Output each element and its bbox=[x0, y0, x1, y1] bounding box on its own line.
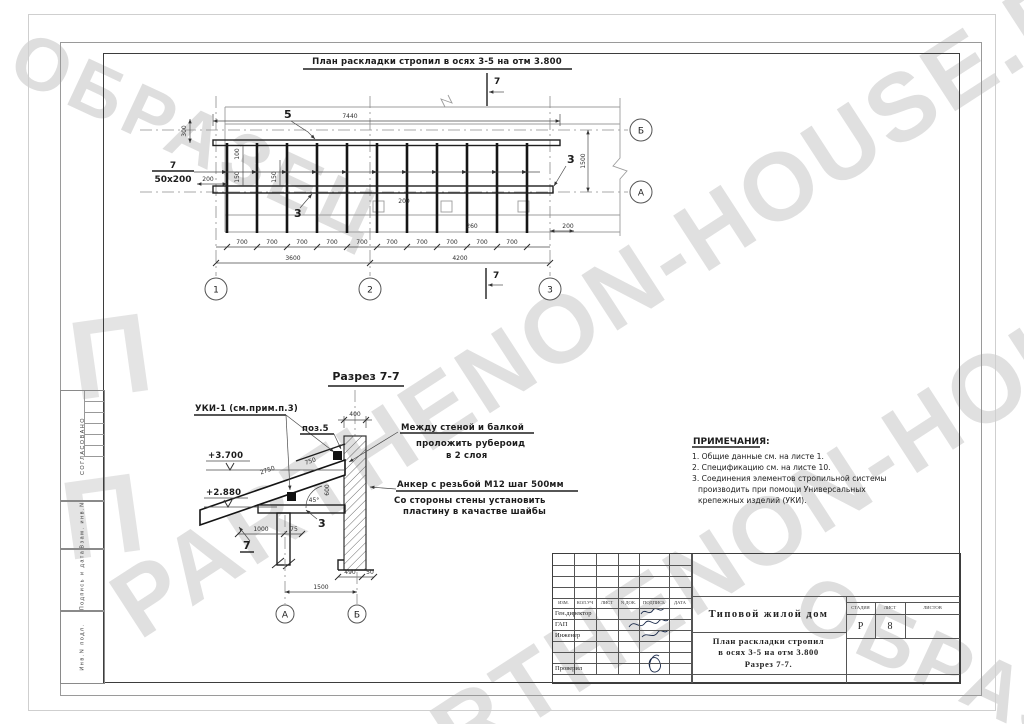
dim-700: 700 bbox=[446, 239, 458, 246]
dim-4200: 4200 bbox=[452, 255, 467, 262]
section-annotations: Между стеной и балкой проложить рубероид… bbox=[349, 422, 578, 517]
tb-sheet-title-1: План раскладки стропил bbox=[713, 636, 824, 647]
dim-260: 260 bbox=[466, 223, 478, 230]
title-block: ИЗМ. КОЛ.УЧ ЛИСТ N ДОК. ПОДПИСЬ ДАТА Ген… bbox=[552, 553, 961, 684]
tb-line bbox=[553, 641, 691, 642]
dim-700: 700 bbox=[236, 239, 248, 246]
section-beam-label: 3 bbox=[318, 517, 326, 530]
dim-1000: 1000 bbox=[253, 526, 268, 533]
tb-line bbox=[639, 554, 640, 674]
tb-line bbox=[553, 565, 691, 566]
axis-1: 1 bbox=[213, 286, 219, 296]
tb-rev-ndok: N ДОК. bbox=[618, 600, 639, 605]
dim-400: 400 bbox=[349, 411, 361, 418]
beam-top-label: 5 bbox=[284, 108, 292, 121]
tb-rev-podpis: ПОДПИСЬ bbox=[639, 600, 669, 605]
tb-list-header: ЛИСТ bbox=[875, 605, 905, 610]
dim-3600: 3600 bbox=[285, 255, 300, 262]
dim-2750: 2750 bbox=[259, 465, 276, 477]
note-anchor-line3: пластину в качастве шайбы bbox=[403, 506, 546, 517]
elevation-bottom: +2.880 bbox=[206, 488, 241, 498]
section-beam bbox=[258, 505, 345, 513]
dim-100: 100 bbox=[234, 148, 241, 160]
section-wall bbox=[344, 436, 366, 570]
dim-600: 600 bbox=[324, 484, 331, 496]
dim-200-mid: 200 bbox=[398, 198, 410, 205]
uki-connector-2 bbox=[333, 451, 342, 460]
tb-role-gap: ГАП bbox=[555, 621, 567, 628]
note-anchor-line1: Анкер с резьбой М12 шаг 500мм bbox=[397, 479, 564, 490]
axis-A: А bbox=[638, 189, 645, 199]
tb-sheets-total bbox=[905, 614, 960, 638]
dim-490: 490 bbox=[344, 569, 356, 576]
beam-mid-label: 3 bbox=[294, 207, 302, 220]
tb-project-title: Типовой жилой дом bbox=[691, 596, 846, 632]
section-view: Разрез 7-7 400 bbox=[194, 370, 578, 623]
tb-role-director: Ген.директор bbox=[555, 610, 592, 617]
dim-300: 300 bbox=[181, 125, 188, 137]
section-axis-B: Б bbox=[354, 611, 360, 621]
note-wall-line3: в 2 слоя bbox=[446, 451, 487, 461]
beam-right-label: 3 bbox=[567, 153, 575, 166]
note-item-3: 3. Соединения элементов стропильной сист… bbox=[692, 474, 886, 483]
plan-beam-top bbox=[213, 140, 560, 146]
note-wall-line2: проложить рубероид bbox=[416, 438, 525, 449]
tb-rev-koluch: КОЛ.УЧ bbox=[574, 600, 596, 605]
uki-label: УКИ-1 (см.прим.п.3) bbox=[195, 404, 298, 414]
tb-line bbox=[596, 554, 597, 674]
uki-connector-1 bbox=[287, 492, 296, 501]
tb-sheet-title-2: в осях 3-5 на отм 3.800 bbox=[718, 647, 819, 658]
dim-700: 700 bbox=[506, 239, 518, 246]
dim-700: 700 bbox=[326, 239, 338, 246]
section-mark-label: 7 bbox=[493, 271, 499, 281]
dim-700: 700 bbox=[356, 239, 368, 246]
tb-line bbox=[553, 608, 691, 609]
tb-sheet-title: План раскладки стропил в осях 3-5 на отм… bbox=[691, 632, 846, 674]
note-item-3c: крепежных изделий (УКИ). bbox=[698, 496, 807, 505]
axis-B: Б bbox=[638, 127, 644, 137]
tb-line bbox=[553, 598, 691, 599]
elevation-top: +3.700 bbox=[208, 451, 243, 461]
tb-rev-list: ЛИСТ bbox=[596, 600, 618, 605]
tb-role-checked: Проверил bbox=[555, 665, 582, 672]
tb-line bbox=[553, 663, 691, 664]
section-axis-A: А bbox=[282, 611, 289, 621]
axis-2: 2 bbox=[367, 286, 373, 296]
plan-position-labels: 5 3 3 bbox=[284, 108, 575, 220]
section-post bbox=[272, 513, 295, 569]
tb-sheet-number: 8 bbox=[875, 614, 905, 638]
plan-title: План раскладки стропил в осях 3-5 на отм… bbox=[312, 57, 562, 67]
note-item-1: 1. Общие данные см. на листе 1. bbox=[692, 452, 824, 461]
dim-1500: 1500 bbox=[580, 153, 587, 168]
tb-line bbox=[553, 576, 691, 577]
tb-line bbox=[669, 554, 670, 674]
note-item-2: 2. Спецификацию см. на листе 10. bbox=[692, 463, 831, 472]
section-mark-label: 7 bbox=[494, 77, 500, 87]
notes-block: ПРИМЕЧАНИЯ: 1. Общие данные см. на листе… bbox=[692, 437, 886, 505]
plan-rafters bbox=[227, 143, 527, 233]
tb-line bbox=[553, 619, 691, 620]
note-item-3b: производить при помощи Универсальных bbox=[698, 485, 866, 494]
tb-listov-header: ЛИСТОВ bbox=[905, 605, 960, 610]
tb-rev-izm: ИЗМ. bbox=[553, 600, 574, 605]
tb-stage-value: Р bbox=[846, 614, 875, 638]
tb-line bbox=[618, 554, 619, 674]
dim-700: 700 bbox=[386, 239, 398, 246]
note-wall-line1: Между стеной и балкой bbox=[401, 422, 524, 433]
dim-150-b: 150 bbox=[271, 171, 278, 183]
tb-rev-data: ДАТА bbox=[669, 600, 691, 605]
tb-line bbox=[553, 587, 691, 588]
dim-200-right: 200 bbox=[562, 223, 574, 230]
drawing-sheet: ОБРАЗЕЦ ОБРАЗЕЦ PARTHENON-HOUSE.RU PARTH… bbox=[0, 0, 1024, 724]
section-rafter-label: 7 bbox=[243, 539, 251, 552]
dim-150-a: 150 bbox=[234, 171, 241, 183]
notes-heading: ПРИМЕЧАНИЯ: bbox=[693, 437, 770, 447]
dim-1500-section: 1500 bbox=[313, 584, 328, 591]
tb-line bbox=[846, 602, 960, 603]
tb-stage-header: СТАДИЯ bbox=[846, 605, 875, 610]
section-title: Разрез 7-7 bbox=[332, 370, 399, 383]
dim-700: 700 bbox=[266, 239, 278, 246]
tb-line bbox=[553, 674, 960, 675]
plan-section-mark-bottom: 7 bbox=[486, 268, 503, 299]
tb-role-engineer: Инженер bbox=[555, 632, 580, 639]
plan-section-mark-top: 7 bbox=[487, 73, 504, 106]
rafter-size-label: 50x200 bbox=[154, 175, 191, 185]
poz5-label: поз.5 bbox=[302, 424, 329, 434]
dim-700: 700 bbox=[416, 239, 428, 246]
dim-700: 700 bbox=[296, 239, 308, 246]
dim-7440: 7440 bbox=[342, 113, 357, 120]
tb-line bbox=[553, 630, 691, 631]
tb-line bbox=[553, 652, 691, 653]
dim-45: 45° bbox=[309, 497, 320, 504]
axis-3: 3 bbox=[547, 286, 553, 296]
dim-700: 700 bbox=[476, 239, 488, 246]
dim-75: 75 bbox=[290, 526, 298, 533]
dim-200-left: 200 bbox=[202, 176, 214, 183]
note-anchor-line2: Со стороны стены установить bbox=[394, 496, 546, 506]
dim-50: 50 bbox=[366, 569, 374, 576]
tb-line bbox=[846, 638, 960, 639]
plan-view: План раскладки стропил в осях 3-5 на отм… bbox=[140, 57, 652, 300]
tb-sheet-title-3: Разрез 7-7. bbox=[745, 659, 792, 670]
rafter-num-label: 7 bbox=[170, 161, 176, 171]
